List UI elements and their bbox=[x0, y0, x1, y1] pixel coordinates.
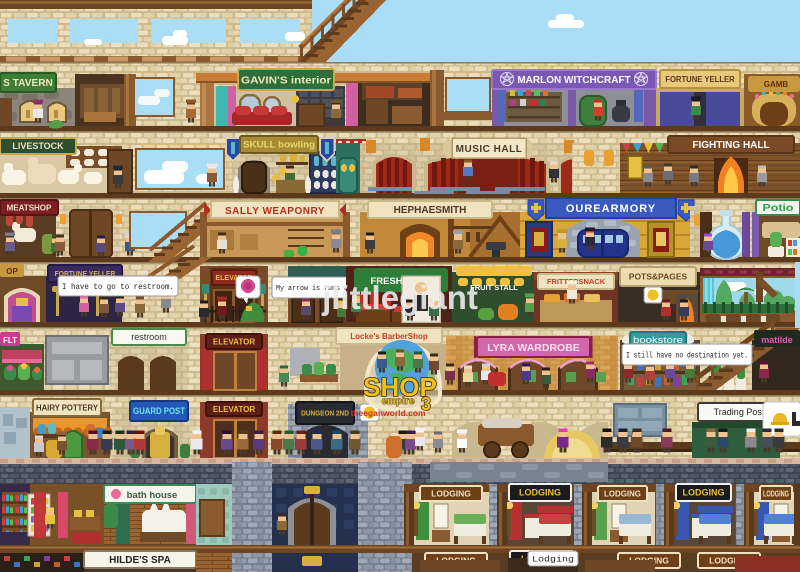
svg-text:OUREARMORY: OUREARMORY bbox=[566, 203, 656, 215]
svg-text:GAVIN'S interior: GAVIN'S interior bbox=[241, 74, 331, 86]
svg-text:Lodging: Lodging bbox=[532, 555, 574, 564]
svg-text:LODGING: LODGING bbox=[519, 488, 561, 498]
svg-text:empire: empire bbox=[382, 396, 415, 407]
svg-text:restroom: restroom bbox=[131, 332, 167, 342]
svg-text:HAIRY POTTERY: HAIRY POTTERY bbox=[36, 403, 99, 412]
svg-text:ELEVATOR: ELEVATOR bbox=[213, 405, 255, 414]
svg-text:Locke's BarberShop: Locke's BarberShop bbox=[350, 332, 428, 341]
svg-text:FLT: FLT bbox=[3, 336, 17, 345]
svg-text:HILDE'S SPA: HILDE'S SPA bbox=[109, 555, 171, 566]
svg-text:I still have no destination ye: I still have no destination yet. bbox=[626, 351, 748, 360]
svg-text:LYRA WARDROBE: LYRA WARDROBE bbox=[487, 342, 580, 354]
svg-text:SALLY WEAPONRY: SALLY WEAPONRY bbox=[225, 206, 325, 217]
svg-text:Potio: Potio bbox=[763, 203, 794, 214]
svg-text:LODGING: LODGING bbox=[763, 489, 789, 499]
svg-text:theeganworld.com: theeganworld.com bbox=[350, 408, 426, 418]
svg-text:DUNGEON 2ND: DUNGEON 2ND bbox=[301, 411, 349, 418]
svg-text:MEATSHOP: MEATSHOP bbox=[7, 203, 52, 212]
svg-text:LODGING: LODGING bbox=[604, 489, 641, 499]
svg-text:HEPHAESMITH: HEPHAESMITH bbox=[394, 205, 467, 216]
svg-text:matilde: matilde bbox=[761, 335, 793, 345]
svg-text:S TAVERN: S TAVERN bbox=[3, 78, 53, 89]
svg-text:POTS&PAGES: POTS&PAGES bbox=[629, 272, 688, 282]
svg-text:Trading Post: Trading Post bbox=[714, 407, 765, 417]
svg-text:ELEVATOR: ELEVATOR bbox=[213, 337, 255, 346]
svg-text:GUARD POST: GUARD POST bbox=[133, 406, 185, 416]
svg-text:bath house: bath house bbox=[127, 490, 178, 501]
svg-text:LIVESTOCK: LIVESTOCK bbox=[12, 141, 64, 151]
svg-text:jlittlegiant: jlittlegiant bbox=[321, 279, 478, 316]
svg-text:LODGING: LODGING bbox=[683, 488, 725, 498]
svg-text:MUSIC HALL: MUSIC HALL bbox=[456, 144, 523, 155]
svg-text:MARLON WITCHCRAFT: MARLON WITCHCRAFT bbox=[517, 75, 630, 86]
svg-text:FORTUNE YELLER: FORTUNE YELLER bbox=[665, 75, 735, 84]
svg-text:OP: OP bbox=[6, 267, 18, 276]
svg-text:LODGING: LODGING bbox=[431, 489, 471, 499]
svg-text:SKULL bowling: SKULL bowling bbox=[243, 140, 315, 150]
svg-text:GAMB: GAMB bbox=[764, 80, 789, 89]
svg-text:FIGHTING HALL: FIGHTING HALL bbox=[692, 140, 769, 151]
svg-text:I have to go to restroom.: I have to go to restroom. bbox=[62, 284, 174, 292]
